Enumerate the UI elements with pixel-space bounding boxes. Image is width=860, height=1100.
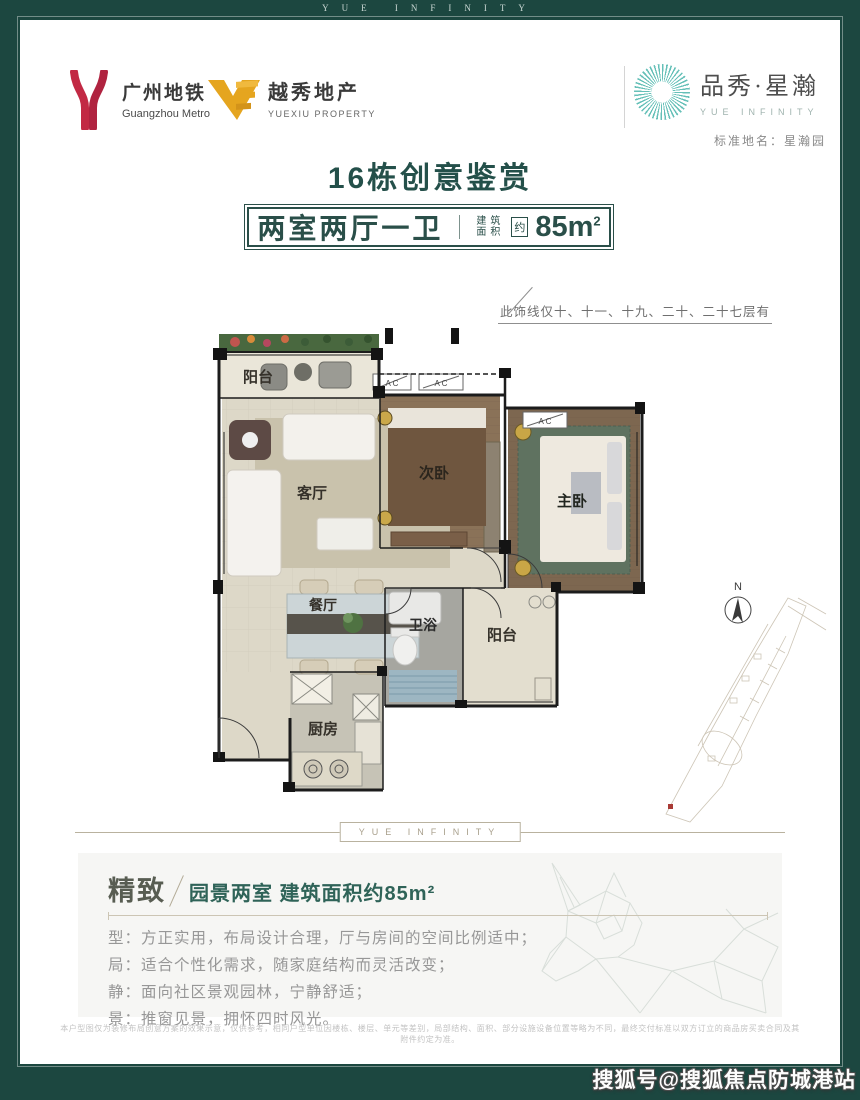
room-label-master: 主卧: [557, 492, 587, 510]
header-divider: [624, 66, 625, 128]
yuexiu-name-en: YUEXIU PROPERTY: [268, 109, 376, 119]
top-band-brand-text: YUE INFINITY: [0, 3, 860, 13]
ac-label: A C: [435, 379, 448, 388]
feature-lines: 型：方正实用，布局设计合理，厅与房间的空间比例适中； 局：适合个性化需求，随家庭…: [108, 925, 537, 1033]
guangzhou-metro-icon: [64, 70, 114, 135]
watermark-text: 搜狐号@搜狐焦点防城港站: [593, 1064, 856, 1094]
standard-place-name: 标准地名：星瀚园: [660, 132, 826, 149]
brand-block: 品秀·星瀚 YUE INFINITY: [700, 66, 826, 117]
entry-floor: [222, 672, 290, 760]
area-value: 85m2: [535, 211, 600, 244]
ac-label: A C: [539, 417, 552, 426]
brand-name-en: YUE INFINITY: [700, 107, 826, 117]
yuexiu-property-label: 越秀地产 YUEXIU PROPERTY: [268, 76, 376, 119]
guangzhou-metro-label: 广州地铁 Guangzhou Metro: [122, 78, 210, 120]
disclaimer-text: 本户型图仅为装修布局创意方案的效果示意，仅供参考，相同户型单位因楼栋、楼层、单元…: [60, 1023, 800, 1045]
page-title: 16栋创意鉴赏: [20, 153, 840, 197]
area-label-line2: 面积: [476, 227, 504, 238]
spec-box: 两室两厅一卫 建筑 面积 约 85m2: [244, 204, 614, 250]
yuexiu-property-icon: [206, 76, 262, 127]
approx-badge: 约: [511, 217, 528, 237]
feature-headline-bold: 精致: [108, 869, 166, 908]
ac-label: A C: [386, 379, 399, 388]
metro-name-en: Guangzhou Metro: [122, 108, 210, 120]
brand-name-cn: 品秀·星瀚: [700, 66, 826, 101]
feature-panel: 精致 园景两室 建筑面积约85m² 型：方正实用，布局设计合理，厅与房间的空间比…: [78, 853, 782, 1017]
site-marker: [668, 804, 673, 809]
layout-text: 两室两厅一卫: [257, 207, 443, 247]
feature-line-3: 静：面向社区景观园林，宁静舒适；: [108, 979, 537, 1006]
site-sketch: [666, 598, 826, 822]
room-label-kitchen: 厨房: [308, 720, 338, 738]
site-plan: N: [638, 576, 828, 831]
room-label-bedroom2: 次卧: [419, 464, 449, 482]
divider-brand-text: YUE INFINITY: [340, 822, 521, 842]
yue-infinity-sunburst-icon: [634, 64, 690, 120]
area-label-line1: 建筑: [476, 216, 504, 227]
room-label-balcony-top: 阳台: [243, 368, 273, 386]
feature-headline-rest: 园景两室 建筑面积约85m²: [189, 877, 435, 908]
room-label-bath: 卫浴: [409, 617, 438, 633]
unicorn-wireframe-art: [522, 853, 782, 1022]
area-sup: 2: [593, 213, 600, 228]
spec-box-inner: 两室两厅一卫 建筑 面积 约 85m2: [247, 207, 611, 247]
yuexiu-name-cn: 越秀地产: [268, 76, 376, 105]
room-label-balcony-bottom: 阳台: [487, 626, 517, 644]
compass-north-label: N: [734, 581, 742, 593]
floor-plan: A C A C A C: [205, 322, 645, 807]
poster-page: YUE INFINITY 广州地铁 Guangzhou Metro 越秀地产 Y…: [0, 0, 860, 1100]
feature-headline: 精致 园景两室 建筑面积约85m²: [108, 869, 435, 908]
balcony-bottom-floor: [463, 588, 557, 706]
metro-name-cn: 广州地铁: [122, 78, 210, 105]
feature-line-1: 型：方正实用，布局设计合理，厅与房间的空间比例适中；: [108, 925, 537, 952]
headline-rule: [108, 915, 768, 916]
spec-separator: [459, 215, 460, 239]
section-divider: YUE INFINITY: [75, 832, 785, 833]
poster-content: 广州地铁 Guangzhou Metro 越秀地产 YUEXIU PROPERT…: [20, 20, 840, 1064]
room-label-dining: 餐厅: [308, 597, 337, 613]
floor-note: 此饰线仅十、十一、十九、二十、二十七层有: [498, 301, 772, 324]
room-label-living: 客厅: [296, 484, 327, 502]
feature-line-2: 局：适合个性化需求，随家庭结构而灵活改变；: [108, 952, 537, 979]
area-label: 建筑 面积: [476, 216, 504, 238]
headline-slash: [169, 875, 184, 906]
